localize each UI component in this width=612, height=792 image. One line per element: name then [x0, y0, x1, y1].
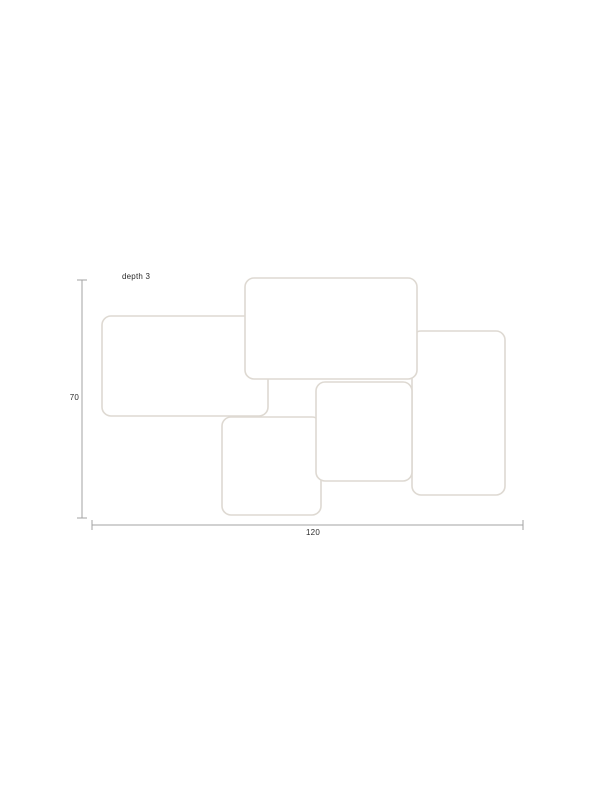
width-dimension-label: 120 — [306, 529, 320, 537]
center-frame-outline — [316, 382, 412, 481]
product-dimension-sheet: depth 3 70 120 — [0, 0, 612, 792]
right-frame-outline — [412, 331, 505, 495]
bottom-frame-outline — [222, 417, 321, 515]
top-frame-outline — [245, 278, 417, 379]
dimension-drawing — [0, 0, 612, 792]
height-dimension-label: 70 — [70, 394, 79, 402]
left-frame-outline — [102, 316, 268, 416]
depth-note-label: depth 3 — [122, 273, 150, 281]
